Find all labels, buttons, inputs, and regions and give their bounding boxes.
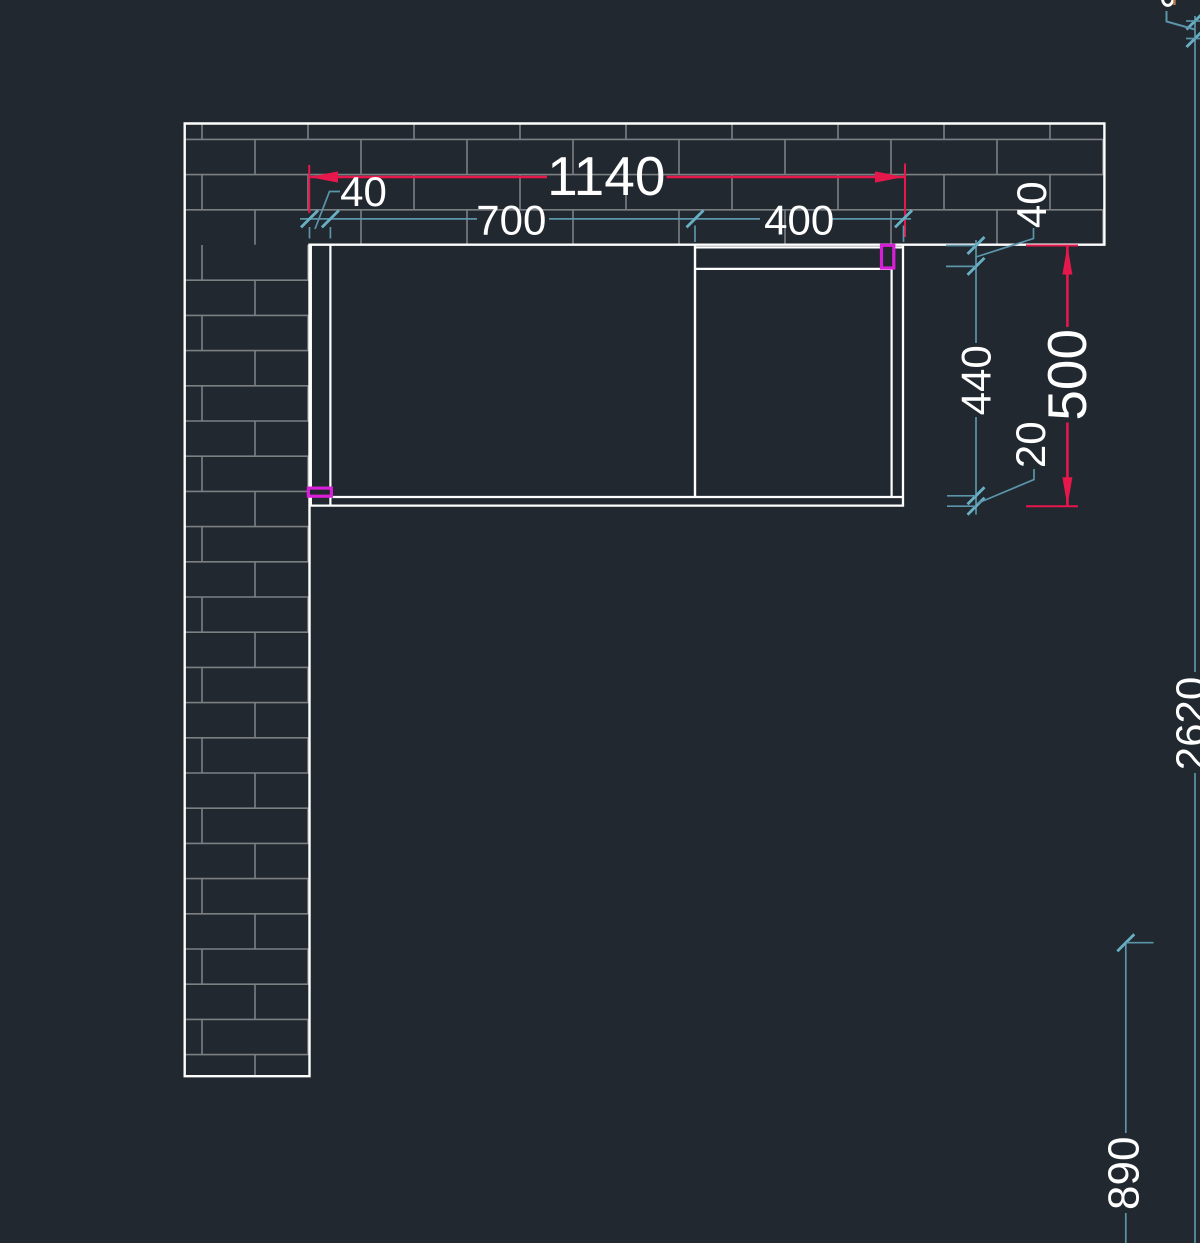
svg-text:2620: 2620 [1167, 677, 1200, 770]
svg-text:400: 400 [764, 197, 834, 244]
svg-text:440: 440 [953, 345, 1000, 415]
svg-text:40: 40 [1008, 181, 1055, 228]
svg-text:20: 20 [1007, 421, 1054, 468]
svg-text:700: 700 [476, 197, 546, 244]
svg-text:500: 500 [1036, 329, 1098, 421]
svg-text:40: 40 [340, 168, 387, 215]
svg-text:1140: 1140 [547, 145, 665, 207]
svg-text:890: 890 [1099, 1137, 1148, 1210]
